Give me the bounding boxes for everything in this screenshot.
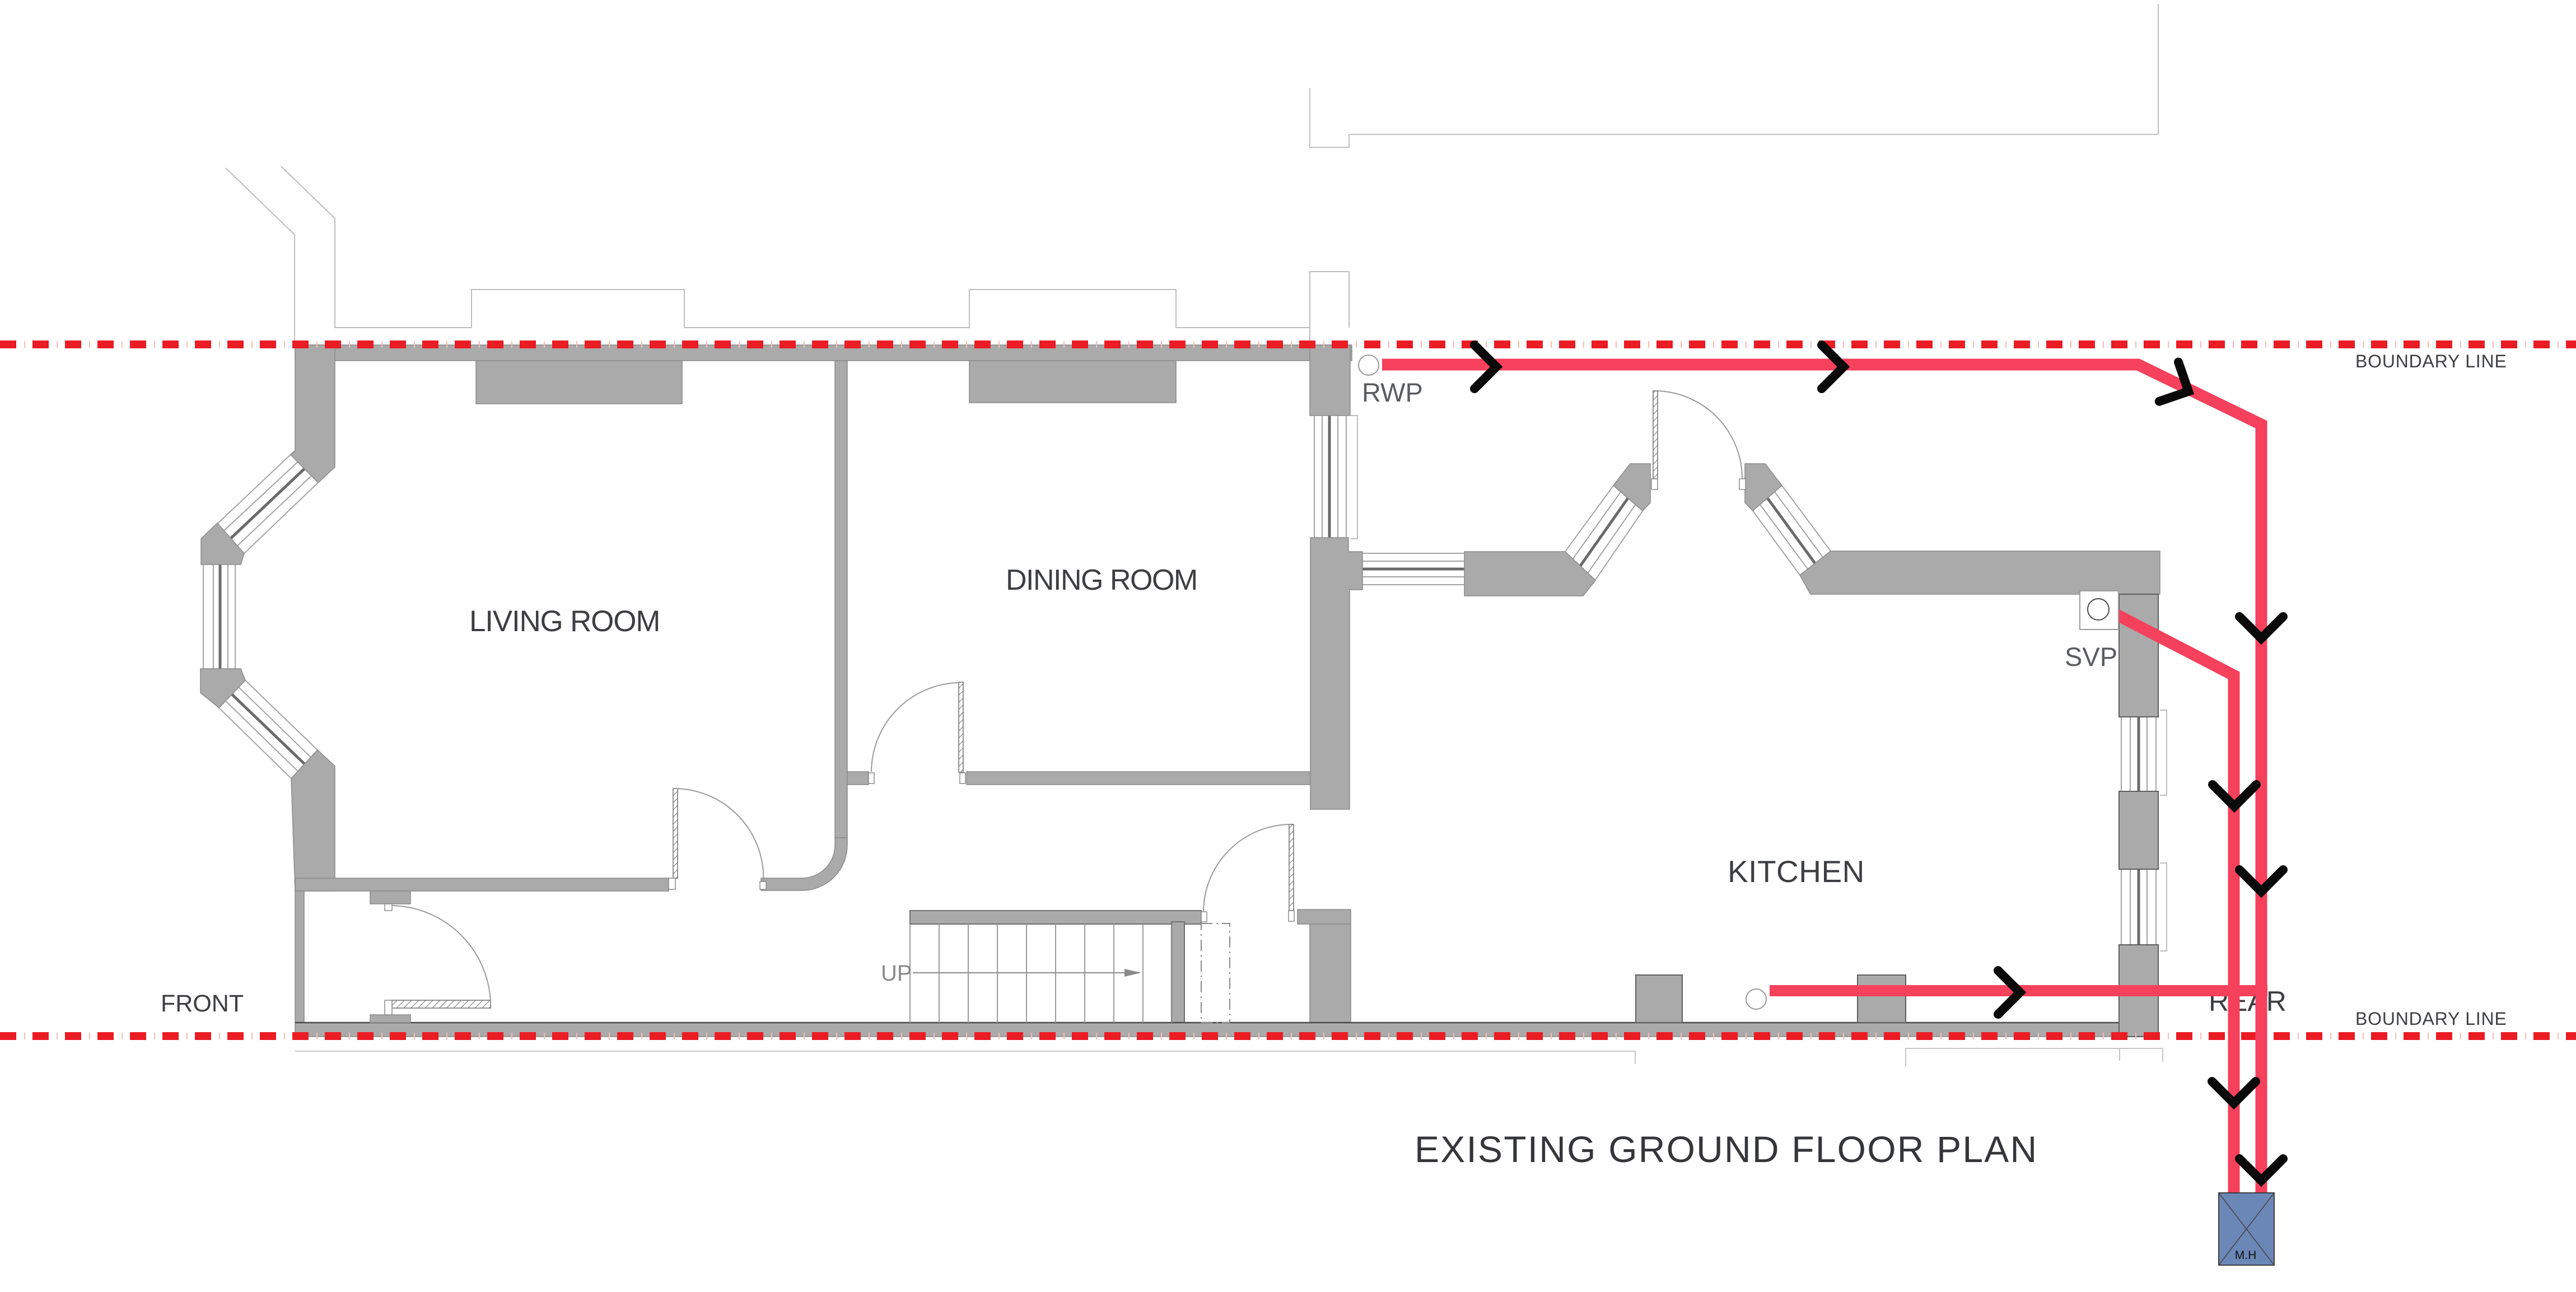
svg-text:RWP: RWP	[1362, 377, 1423, 407]
svg-text:BOUNDARY LINE: BOUNDARY LINE	[2355, 1009, 2507, 1029]
svg-text:FRONT: FRONT	[161, 990, 244, 1017]
svg-text:BOUNDARY LINE: BOUNDARY LINE	[2355, 351, 2507, 371]
svg-text:UP: UP	[881, 961, 912, 986]
svg-text:LIVING ROOM: LIVING ROOM	[469, 605, 660, 638]
svg-text:KITCHEN: KITCHEN	[1728, 854, 1865, 889]
svg-text:M.H: M.H	[2235, 1249, 2257, 1262]
svg-text:EXISTING GROUND FLOOR PLAN: EXISTING GROUND FLOOR PLAN	[1415, 1128, 2038, 1170]
svg-text:DINING ROOM: DINING ROOM	[1006, 564, 1197, 596]
svg-text:SVP: SVP	[2065, 642, 2117, 671]
